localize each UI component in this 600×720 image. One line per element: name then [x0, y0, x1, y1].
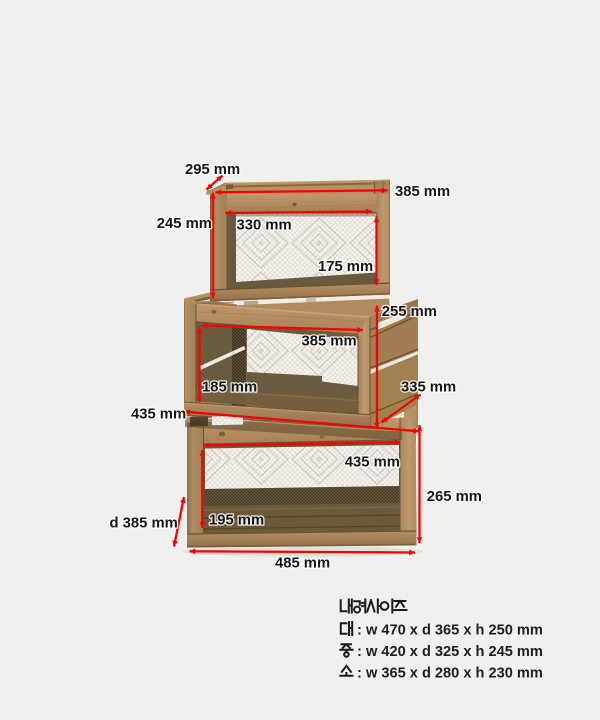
svg-text:265 mm: 265 mm: [427, 489, 482, 505]
svg-text:245 mm: 245 mm: [157, 216, 212, 232]
svg-text:435 mm: 435 mm: [131, 407, 186, 423]
svg-text:195 mm: 195 mm: [209, 513, 264, 529]
svg-text:330 mm: 330 mm: [237, 217, 292, 233]
svg-text:175 mm: 175 mm: [318, 259, 373, 275]
svg-text:: w 365 x d 280 x h 230 mm: : w 365 x d 280 x h 230 mm: [353, 666, 543, 682]
svg-text:385 mm: 385 mm: [302, 333, 357, 349]
svg-text:485 mm: 485 mm: [275, 556, 330, 572]
svg-text:335 mm: 335 mm: [401, 380, 456, 396]
svg-text:d 385 mm: d 385 mm: [110, 515, 178, 531]
svg-text:435 mm: 435 mm: [345, 455, 400, 471]
svg-text:185 mm: 185 mm: [202, 380, 257, 396]
svg-text:295 mm: 295 mm: [185, 162, 240, 178]
svg-text:: w 420 x d 325 x h 245 mm: : w 420 x d 325 x h 245 mm: [353, 644, 543, 660]
svg-text:: w 470 x d 365 x h 250 mm: : w 470 x d 365 x h 250 mm: [353, 623, 543, 639]
svg-text:255 mm: 255 mm: [382, 304, 437, 320]
svg-text:385 mm: 385 mm: [395, 184, 450, 200]
